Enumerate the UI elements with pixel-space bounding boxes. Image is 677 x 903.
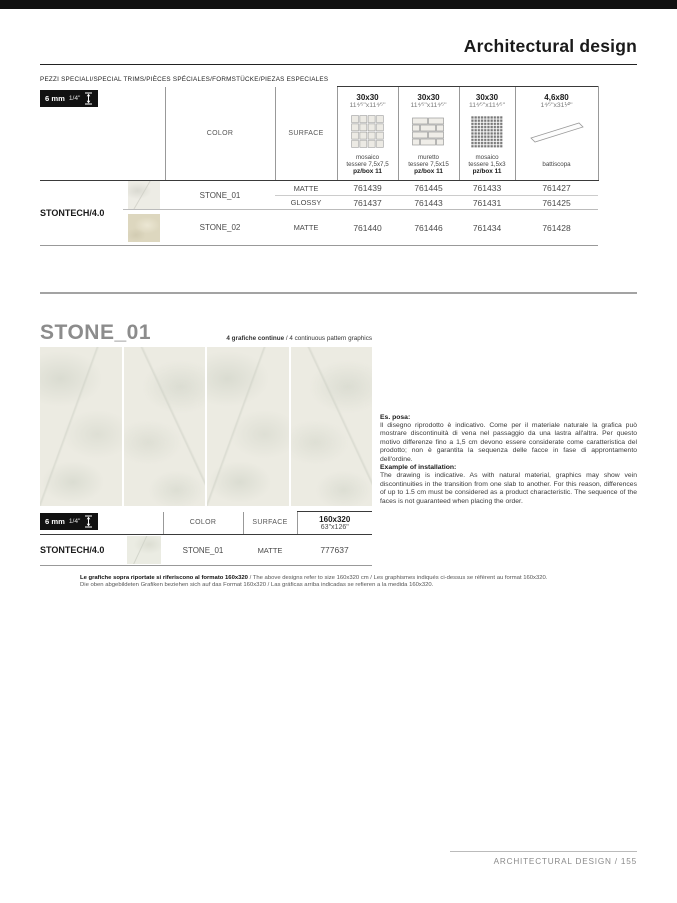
- product-code: 761446: [398, 210, 459, 246]
- catalog-page: Architectural design PEZZI SPECIALI/SPEC…: [0, 0, 677, 903]
- top-black-bar: [0, 0, 677, 9]
- product-box-count: pz/box 11: [473, 168, 502, 176]
- installation-en-title: Example of installation:: [380, 464, 637, 472]
- product-caption2: tessere 1,5x3: [468, 161, 505, 168]
- stone01-swatch-cell: [125, 535, 163, 566]
- product-size-inches: 11⁴⁄⁵"x11⁴⁄⁵": [349, 102, 385, 110]
- surface-name: MATTE: [275, 181, 337, 196]
- thickness-inches: 1/4": [69, 518, 81, 525]
- product-code: 761427: [515, 181, 598, 196]
- thickness-badge: 6 mm 1/4": [40, 513, 98, 530]
- product-header-mosaico-153: 30x30 11⁴⁄⁵"x11⁴⁄⁵" mosaico: [459, 87, 515, 181]
- empty-swatch-header: [123, 87, 165, 181]
- surface-name: MATTE: [243, 535, 297, 566]
- color-name: STONE_02: [165, 210, 275, 246]
- color-name: STONE_01: [163, 535, 243, 566]
- product-size: 30x30: [417, 93, 439, 102]
- color-name: STONE_01: [165, 181, 275, 210]
- thickness-inches: 1/4": [69, 95, 81, 102]
- stone01-header: STONE_01 4 grafiche continue / 4 continu…: [40, 322, 372, 344]
- special-trims-table: 6 mm 1/4" COLOR SURFACE: [40, 86, 599, 246]
- stone02-swatch-cell: [123, 210, 165, 246]
- footer-rule: [450, 851, 637, 852]
- thickness-arrow-icon: [84, 515, 93, 528]
- special-trims-heading: PEZZI SPECIALI/SPECIAL TRIMS/PIÈCES SPÉC…: [40, 76, 637, 83]
- product-code: 761437: [337, 196, 398, 210]
- surface-column-header: SURFACE: [243, 512, 297, 535]
- format-footnote: Le grafiche sopra riportate si riferisco…: [80, 575, 597, 589]
- product-code: 761433: [459, 181, 515, 196]
- tile-panel: [124, 347, 206, 506]
- surface-name: GLOSSY: [275, 196, 337, 210]
- trims-header-row: 6 mm 1/4" COLOR SURFACE: [40, 87, 598, 181]
- stone01-body: Es. posa: Il disegno riprodotto è indica…: [40, 347, 637, 506]
- product-caption2: tessere 7,5x15: [408, 161, 449, 168]
- product-header-mosaico-7575: 30x30 11⁴⁄⁵"x11⁴⁄⁵" mosaico tessere 7,: [337, 87, 398, 181]
- format-footnote-line1: Le grafiche sopra riportate si riferisco…: [80, 575, 597, 582]
- page-title: Architectural design: [40, 36, 637, 57]
- title-rule: [40, 64, 637, 65]
- product-size-inches: 11⁴⁄⁵"x11⁴⁄⁵": [469, 102, 505, 110]
- stone01-swatch: [128, 181, 160, 209]
- series-name: STONTECH/4.0: [40, 535, 125, 566]
- product-size: 4,6x80: [544, 93, 568, 102]
- mosaic-grid-icon: [351, 110, 384, 154]
- product-code: 761445: [398, 181, 459, 196]
- muretto-brick-icon: [412, 110, 445, 154]
- product-code: 761439: [337, 181, 398, 196]
- tile-panel: [291, 347, 373, 506]
- product-caption2: battiscopa: [542, 161, 570, 168]
- product-header-battiscopa: 4,6x80 1⁴⁄⁵"x31¹⁄²" battiscopa: [515, 87, 598, 181]
- tile-pattern-image: [40, 347, 372, 506]
- product-code: 761434: [459, 210, 515, 246]
- slab-size-inches: 63"x126": [298, 524, 373, 532]
- tile-panel: [40, 347, 122, 506]
- product-caption: muretto: [418, 154, 439, 161]
- section-divider: [40, 292, 637, 294]
- product-code: 761443: [398, 196, 459, 210]
- thickness-arrow-icon: [84, 92, 93, 105]
- thickness-badge: 6 mm 1/4": [40, 90, 98, 107]
- slab-size-header: 160x320 63"x126": [297, 512, 372, 535]
- table-row-stone01-slab: STONTECH/4.0 STONE_01 MATTE 777637: [40, 535, 372, 566]
- product-size-inches: 1⁴⁄⁵"x31¹⁄²": [540, 102, 572, 110]
- product-size: 30x30: [476, 93, 498, 102]
- installation-it-body: Il disegno riprodotto è indicativo. Come…: [380, 422, 637, 464]
- series-name: STONTECH/4.0: [40, 181, 123, 246]
- stone01-section: STONE_01 4 grafiche continue / 4 continu…: [40, 322, 637, 589]
- thickness-value: 6 mm: [45, 517, 65, 526]
- format-footnote-line2: Die oben abgebildeten Grafiken beziehen …: [80, 582, 597, 589]
- product-caption: mosaico: [475, 154, 498, 161]
- mosaic-dense-icon: [471, 110, 503, 154]
- page-header: Architectural design: [40, 36, 637, 57]
- page-footer: ARCHITECTURAL DESIGN / 155: [40, 851, 637, 866]
- surface-name: MATTE: [275, 210, 337, 246]
- table-row-stone01-matte: STONTECH/4.0 STONE_01 MATTE 761439 76144…: [40, 181, 598, 196]
- battiscopa-icon: [528, 110, 586, 154]
- product-caption2: tessere 7,5x7,5: [346, 161, 388, 168]
- stone01-swatch-cell: [123, 181, 165, 210]
- slab-size: 160x320: [298, 515, 373, 524]
- product-code: 761425: [515, 196, 598, 210]
- table-row-stone02-matte: STONE_02 MATTE 761440 761446 761434 7614…: [40, 210, 598, 246]
- installation-notes: Es. posa: Il disegno riprodotto è indica…: [380, 347, 637, 506]
- product-size-inches: 11⁴⁄⁵"x11⁴⁄⁵": [410, 102, 446, 110]
- thickness-cell: 6 mm 1/4": [40, 512, 125, 535]
- special-trims-section: PEZZI SPECIALI/SPECIAL TRIMS/PIÈCES SPÉC…: [40, 76, 637, 246]
- product-code: 761440: [337, 210, 398, 246]
- stone01-title: STONE_01: [40, 322, 151, 344]
- color-column-header: COLOR: [163, 512, 243, 535]
- product-code: 777637: [297, 535, 372, 566]
- slab-size-table: 6 mm 1/4" COLOR SURFACE: [40, 511, 372, 566]
- footer-page-label: ARCHITECTURAL DESIGN / 155: [40, 857, 637, 866]
- stone01-swatch: [127, 536, 161, 564]
- slab-header-row: 6 mm 1/4" COLOR SURFACE: [40, 512, 372, 535]
- product-box-count: pz/box 11: [353, 168, 382, 176]
- pattern-graphics-note-rest: / 4 continuous pattern graphics: [284, 335, 372, 342]
- empty-swatch-header: [125, 512, 163, 535]
- pattern-graphics-note-bold: 4 grafiche continue: [226, 335, 284, 342]
- thickness-value: 6 mm: [45, 94, 65, 103]
- product-header-muretto: 30x30 11⁴⁄⁵"x11⁴⁄⁵": [398, 87, 459, 181]
- product-caption: mosaico: [356, 154, 379, 161]
- product-box-count: pz/box 11: [414, 168, 443, 176]
- thickness-cell: 6 mm 1/4": [40, 87, 123, 181]
- product-code: 761431: [459, 196, 515, 210]
- stone02-swatch: [128, 214, 160, 242]
- surface-column-header: SURFACE: [275, 87, 337, 181]
- tile-panel: [207, 347, 289, 506]
- product-code: 761428: [515, 210, 598, 246]
- installation-en-body: The drawing is indicative. As with natur…: [380, 472, 637, 506]
- product-size: 30x30: [356, 93, 378, 102]
- pattern-graphics-note: 4 grafiche continue / 4 continuous patte…: [226, 335, 372, 344]
- color-column-header: COLOR: [165, 87, 275, 181]
- installation-it-title: Es. posa:: [380, 414, 637, 422]
